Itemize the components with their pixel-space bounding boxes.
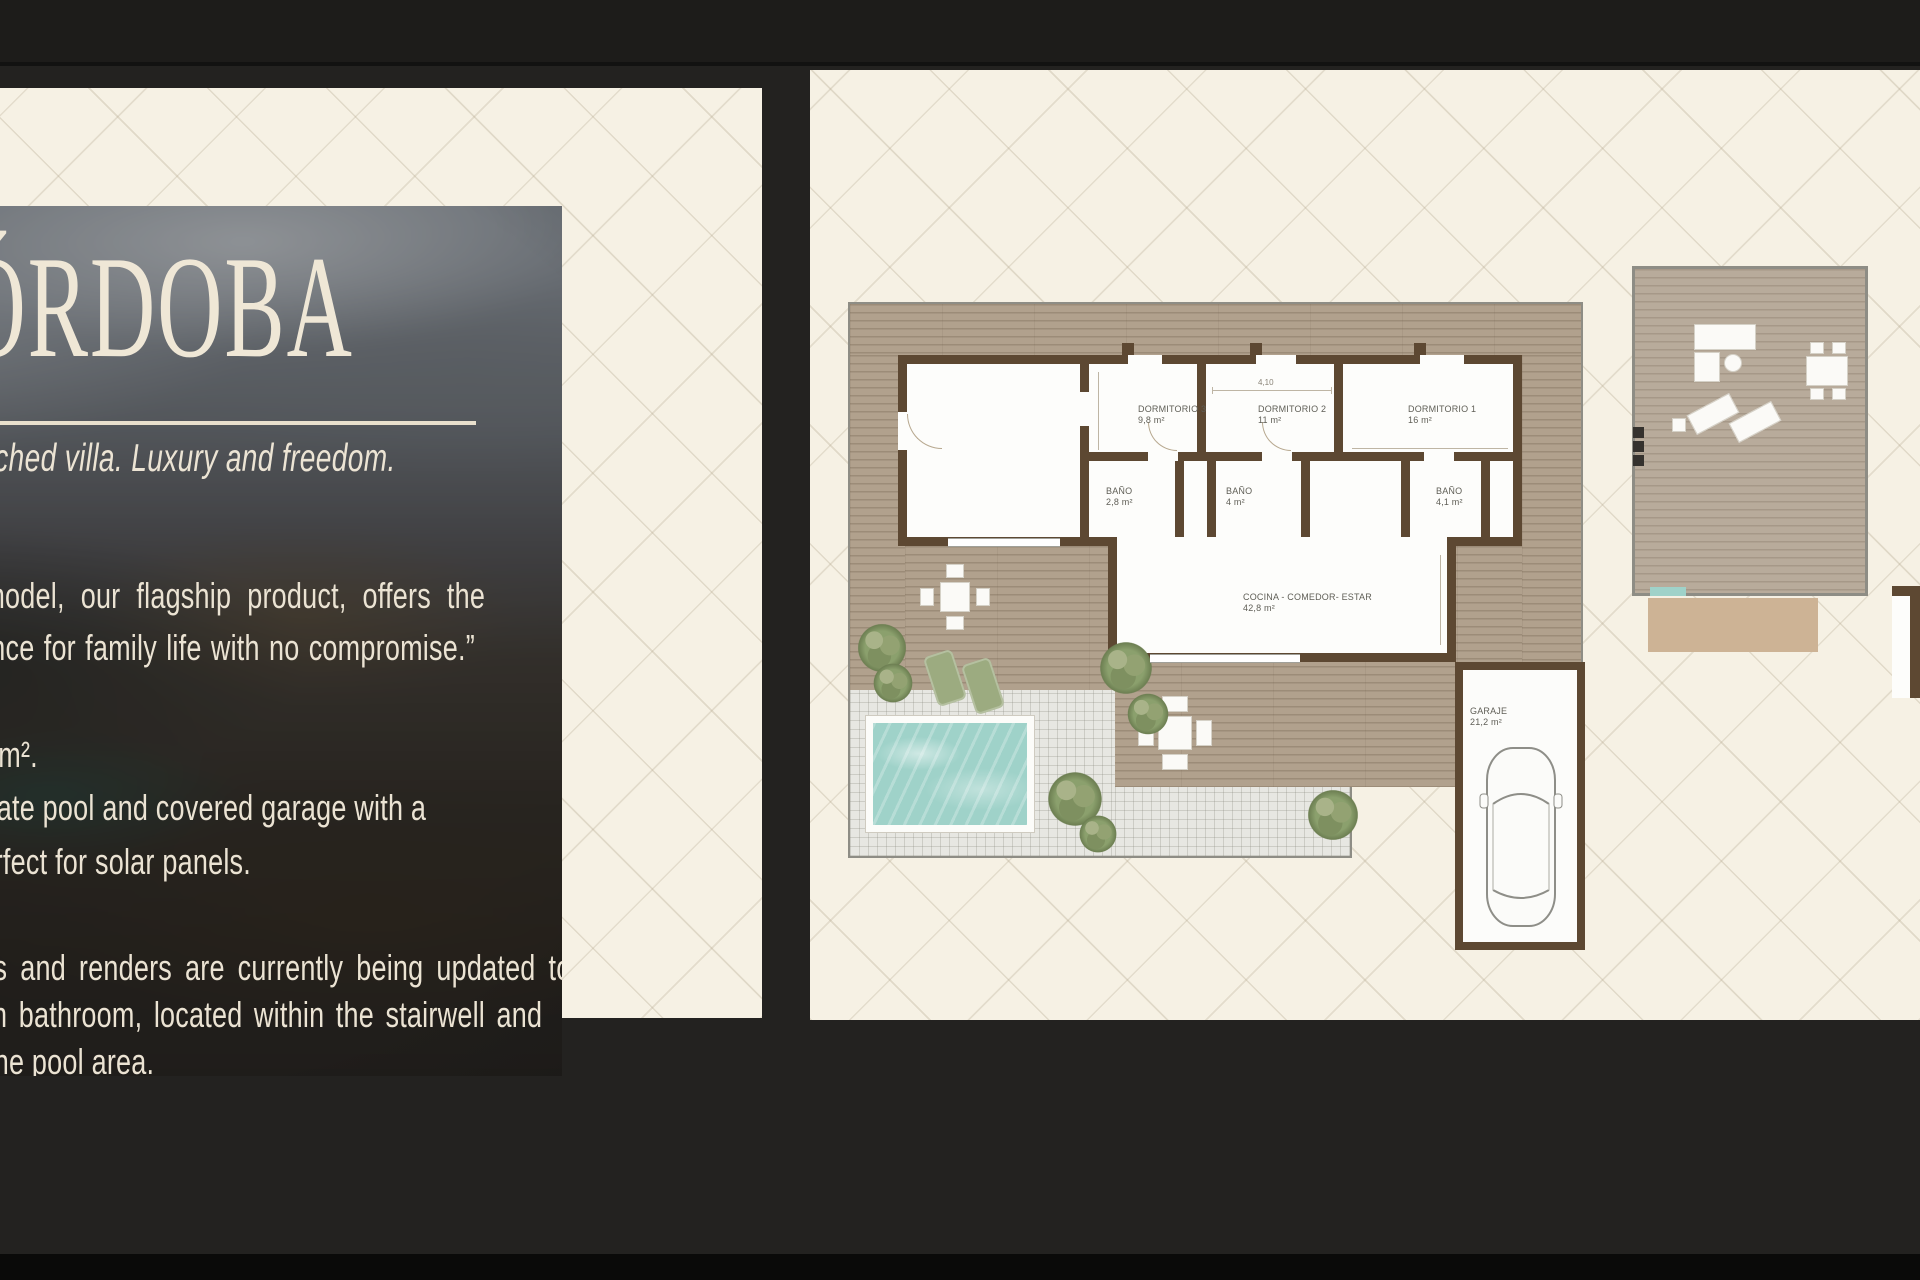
room-label-bath-1: BAÑO 2,8 m² xyxy=(1106,486,1133,508)
chair xyxy=(1162,754,1188,770)
dimension-label: 4,10 xyxy=(1258,378,1274,387)
room-label-garage: GARAJE 21,2 m² xyxy=(1470,706,1507,728)
villa-text-layer: CÓRDOBA Large detached villa. Luxury and… xyxy=(0,206,562,1076)
room-name: DORMITORIO 3 xyxy=(1138,404,1206,415)
hall-opening xyxy=(1312,537,1400,546)
stair-marker xyxy=(1633,455,1644,466)
villa-title: CÓRDOBA xyxy=(0,232,396,382)
wall-bed2-bed1 xyxy=(1334,364,1343,461)
glass-door xyxy=(948,538,1060,547)
room-area: 9,8 m² xyxy=(1138,415,1206,426)
note-line: ude the fourth bathroom, located within … xyxy=(0,993,542,1037)
room-area: 2,8 m² xyxy=(1106,497,1133,508)
outdoor-table xyxy=(940,582,970,612)
villa-info-card: CÓRDOBA Large detached villa. Luxury and… xyxy=(0,88,762,1018)
door-gap xyxy=(1080,392,1089,426)
dining-table xyxy=(1806,356,1848,386)
room-area: 21,2 m² xyxy=(1470,717,1507,728)
door-gap xyxy=(1262,452,1292,461)
wall-post xyxy=(1414,343,1426,355)
chair xyxy=(1832,342,1846,354)
dimension-line xyxy=(1212,390,1332,391)
plant xyxy=(872,662,914,704)
plant xyxy=(1098,640,1154,696)
top-dark-band xyxy=(0,0,1920,66)
chair xyxy=(946,616,964,630)
room-name: BAÑO xyxy=(1106,486,1133,497)
door-gap xyxy=(1148,452,1178,461)
chair xyxy=(1196,720,1212,746)
dimension-tick xyxy=(1212,387,1213,394)
room-area: 42,8 m² xyxy=(1243,603,1372,614)
pool-edge-sliver xyxy=(1650,587,1686,596)
side-table xyxy=(1672,418,1686,432)
wall-post xyxy=(1122,343,1134,355)
dimension-line xyxy=(1440,555,1441,645)
room-name: GARAJE xyxy=(1470,706,1507,717)
room-label-bath-3: BAÑO 4,1 m² xyxy=(1436,486,1463,508)
wall-bathB-left xyxy=(1207,461,1216,537)
detail-line: eatures a private pool and covered garag… xyxy=(0,786,426,830)
room-name: DORMITORIO 1 xyxy=(1408,404,1476,415)
detail-line: arium of 99,5 m². xyxy=(0,733,38,777)
wall-post xyxy=(1250,343,1262,355)
room-name: BAÑO xyxy=(1226,486,1252,497)
car-icon xyxy=(1478,742,1564,932)
side-table xyxy=(1724,354,1742,372)
room-area: 16 m² xyxy=(1408,415,1476,426)
deck-right xyxy=(1522,355,1583,662)
note-line: essible from the pool area. xyxy=(0,1040,154,1076)
dimension-line xyxy=(1098,372,1099,450)
swimming-pool xyxy=(866,716,1034,832)
dimension-tick xyxy=(1331,387,1332,394)
wall-bathC-right xyxy=(1481,461,1490,537)
stair-marker xyxy=(1633,427,1644,438)
room-label-kitchen-living: COCINA - COMEDOR- ESTAR 42,8 m² xyxy=(1243,592,1372,614)
deck-top xyxy=(848,302,1583,355)
chair xyxy=(1810,388,1824,400)
wall-bathA-right xyxy=(1175,461,1184,537)
room-area: 11 m² xyxy=(1258,415,1326,426)
plant xyxy=(1306,788,1360,842)
room-label-dormitorio-1: DORMITORIO 1 16 m² xyxy=(1408,404,1476,426)
villa-subtitle: Large detached villa. Luxury and freedom… xyxy=(0,436,440,482)
plant xyxy=(1126,692,1170,736)
detail-line: ,8 m² roof, perfect for solar panels. xyxy=(0,840,251,884)
brochure-page: CÓRDOBA Large detached villa. Luxury and… xyxy=(0,0,1920,1280)
chair xyxy=(1810,342,1824,354)
villa-photo: CÓRDOBA Large detached villa. Luxury and… xyxy=(0,206,562,1076)
quote-line: mate experience for family life with no … xyxy=(0,626,475,670)
bottom-black-band xyxy=(0,1254,1920,1280)
sofa xyxy=(1694,352,1720,382)
chair xyxy=(946,564,964,578)
room-area: 4 m² xyxy=(1226,497,1252,508)
chair xyxy=(1832,388,1846,400)
window-gap xyxy=(1128,355,1162,364)
note-line: e: Floor plans and renders are currently… xyxy=(0,946,562,990)
wall-bathB-right xyxy=(1301,461,1310,537)
entry-door-gap xyxy=(898,412,907,450)
sofa xyxy=(1694,324,1756,350)
pergola-area xyxy=(1648,598,1818,652)
quote-line: e Córdoba model, our flagship product, o… xyxy=(0,574,485,618)
room-area: 4,1 m² xyxy=(1436,497,1463,508)
door-gap xyxy=(1424,452,1454,461)
title-divider xyxy=(0,421,476,425)
dimension-line xyxy=(1352,448,1508,449)
room-label-dormitorio-2: DORMITORIO 2 11 m² xyxy=(1258,404,1326,426)
room-name: BAÑO xyxy=(1436,486,1463,497)
chair xyxy=(920,588,934,606)
room-name: COCINA - COMEDOR- ESTAR xyxy=(1243,592,1372,603)
wall-bathC-left xyxy=(1401,461,1410,537)
room-label-dormitorio-3: DORMITORIO 3 9,8 m² xyxy=(1138,404,1206,426)
window-gap xyxy=(1256,355,1296,364)
cutoff-room-wall xyxy=(1910,586,1920,698)
plant xyxy=(1078,814,1118,854)
glass-door xyxy=(1150,654,1300,663)
room-name: DORMITORIO 2 xyxy=(1258,404,1326,415)
stair-marker xyxy=(1633,441,1644,452)
chair xyxy=(976,588,990,606)
window-gap xyxy=(1420,355,1464,364)
room-label-bath-2: BAÑO 4 m² xyxy=(1226,486,1252,508)
